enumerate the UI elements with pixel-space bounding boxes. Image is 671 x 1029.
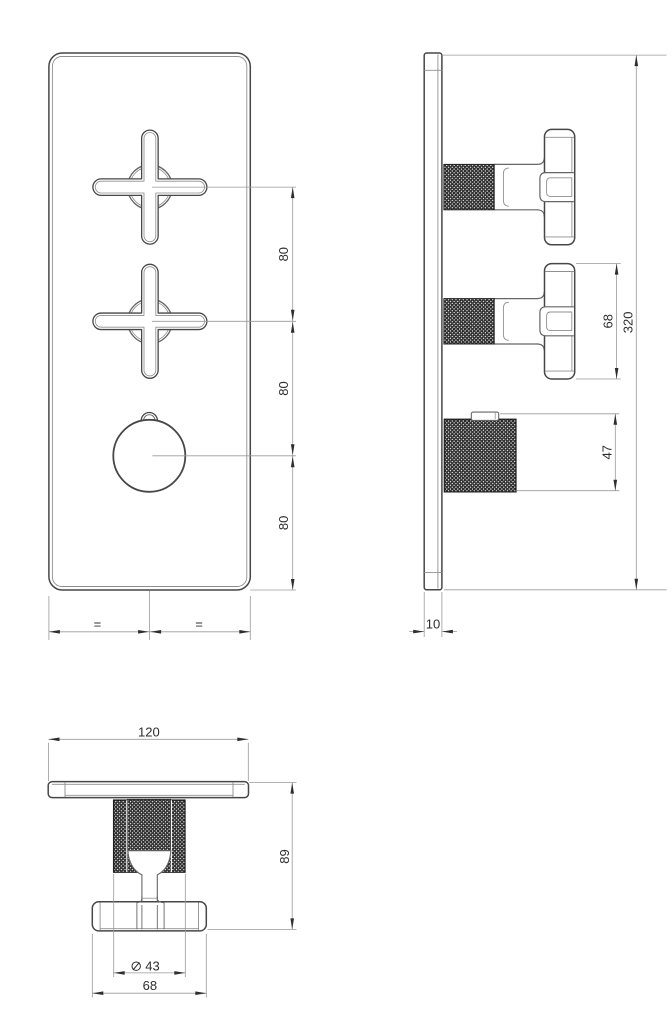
svg-text:68: 68 (601, 314, 616, 328)
svg-text:43: 43 (145, 959, 159, 974)
svg-text:320: 320 (621, 312, 636, 334)
svg-text:89: 89 (277, 849, 292, 863)
svg-text:68: 68 (143, 978, 157, 993)
svg-text:120: 120 (138, 724, 160, 739)
svg-text:10: 10 (426, 616, 440, 631)
svg-text:=: = (94, 617, 102, 632)
svg-text:80: 80 (276, 516, 291, 530)
svg-text:=: = (195, 617, 203, 632)
svg-text:80: 80 (276, 247, 291, 261)
svg-text:47: 47 (599, 445, 614, 459)
svg-text:80: 80 (276, 381, 291, 395)
